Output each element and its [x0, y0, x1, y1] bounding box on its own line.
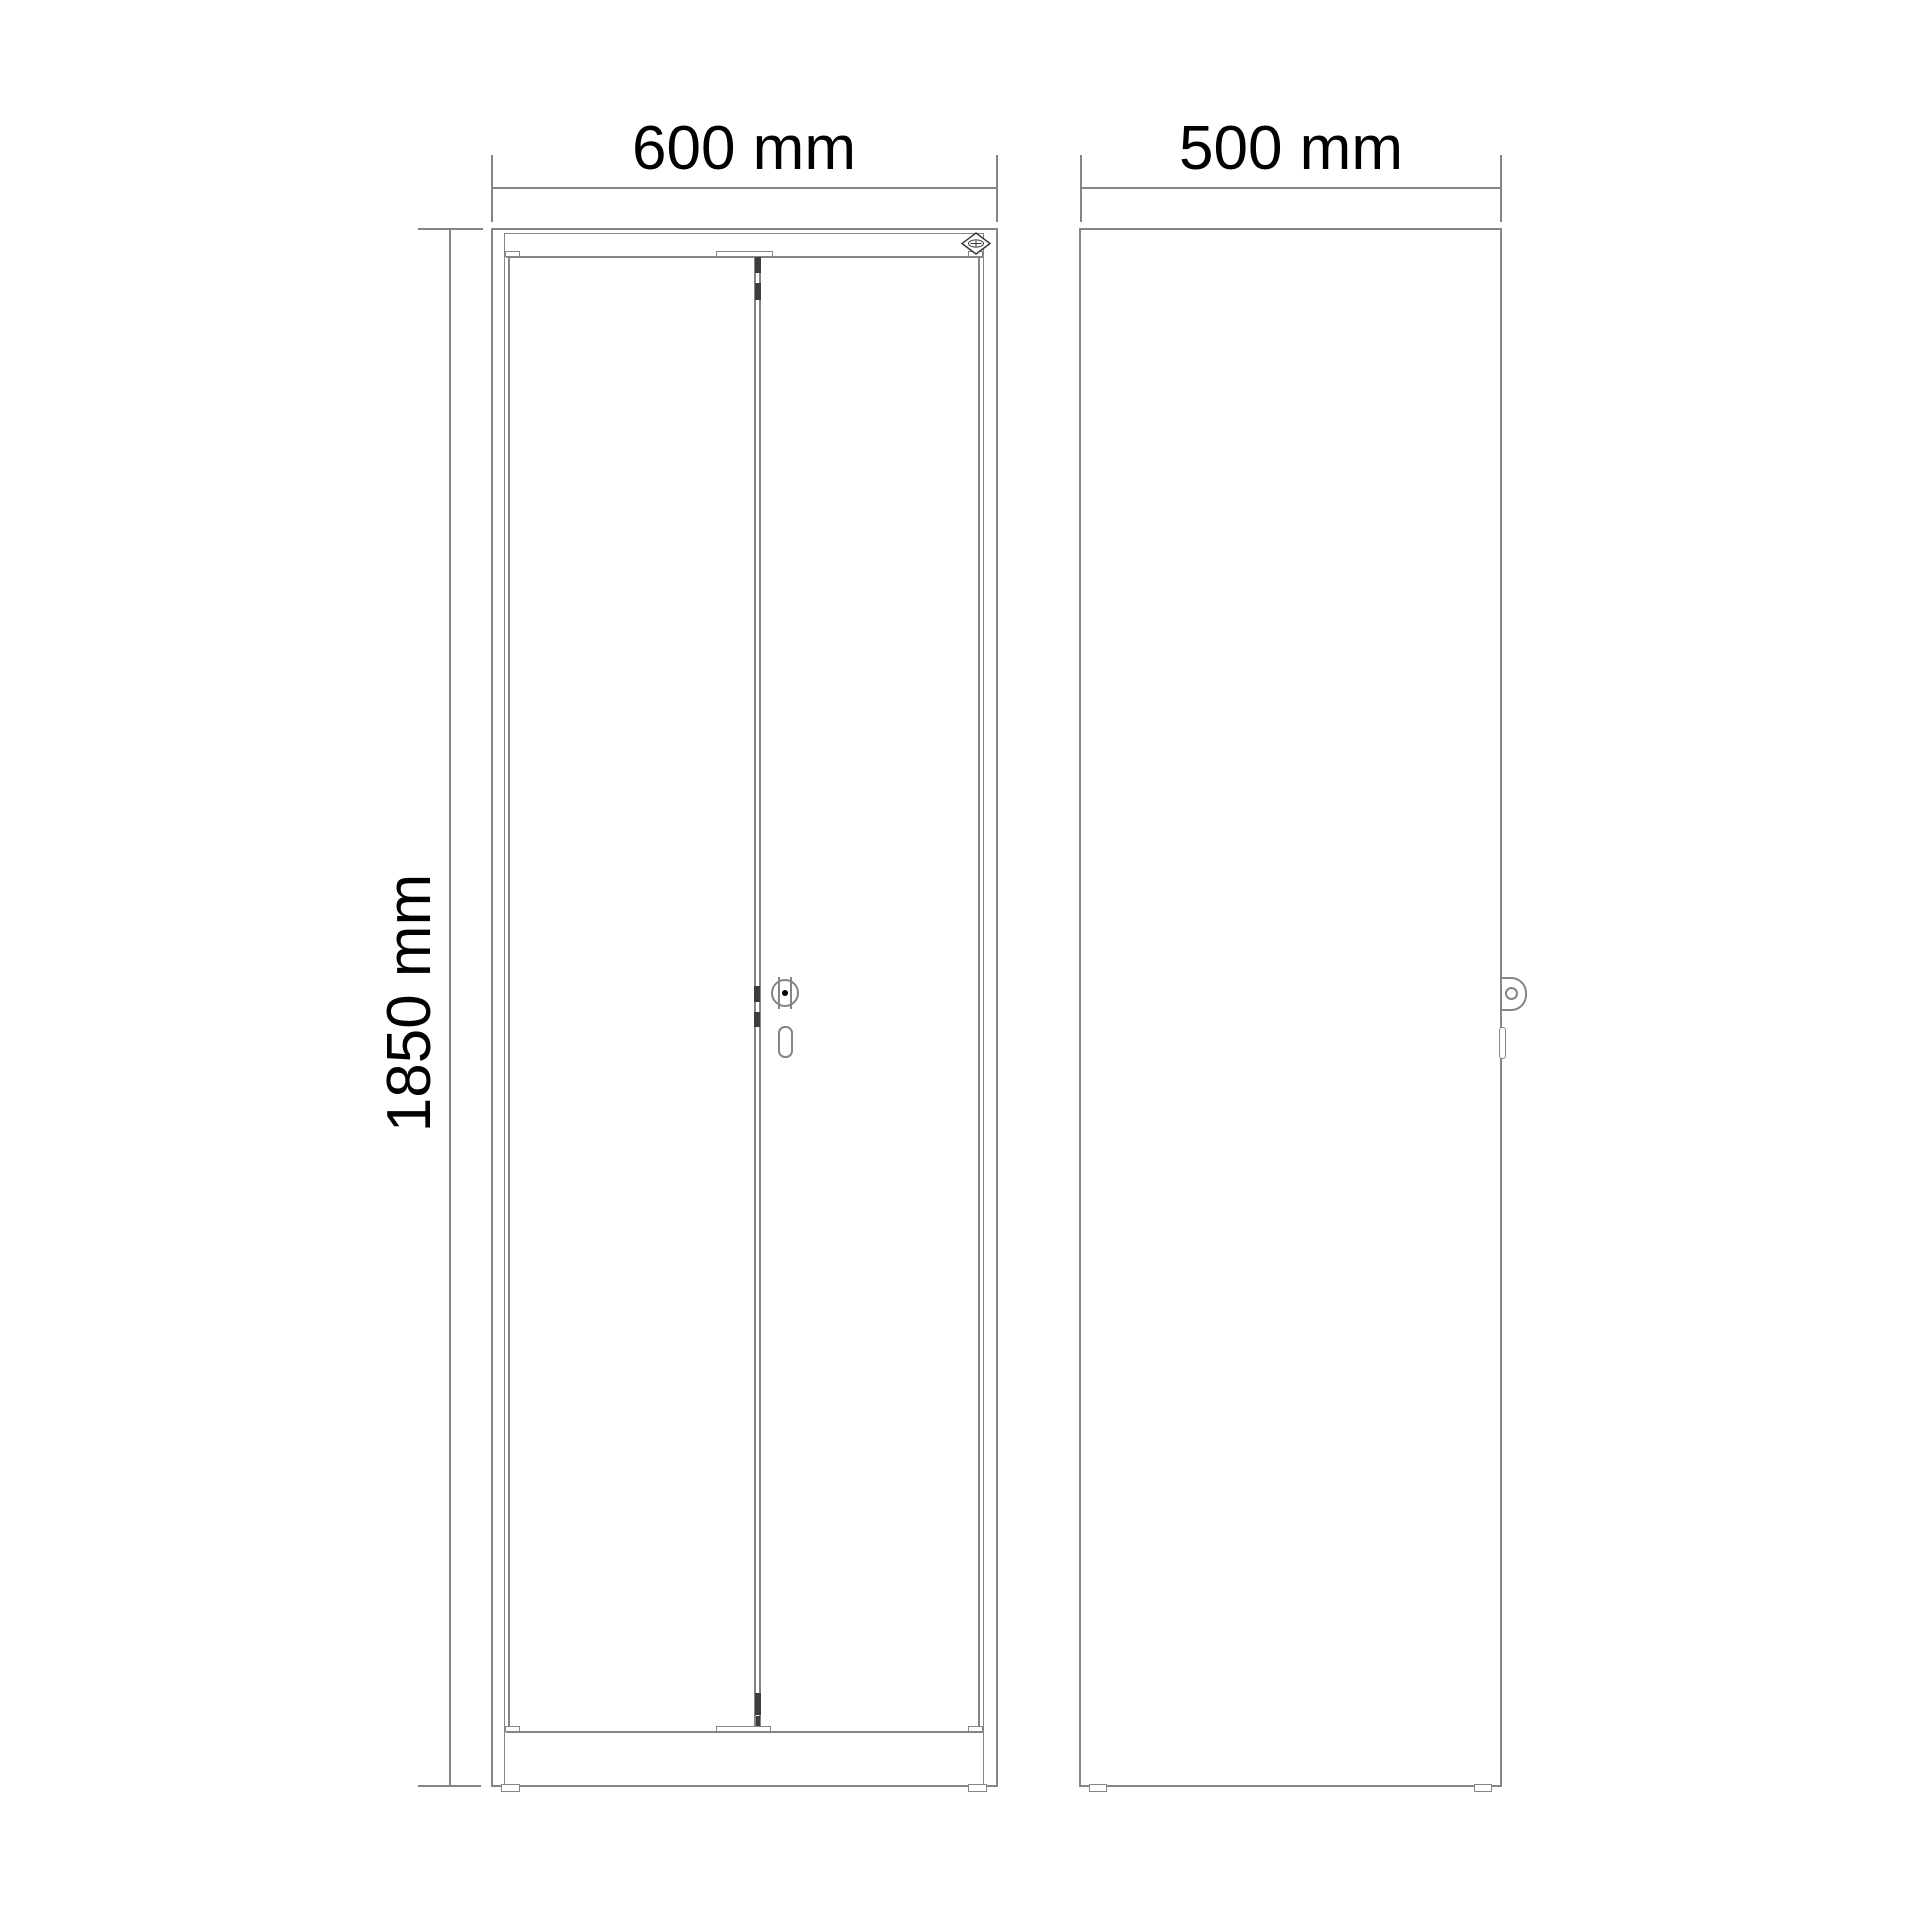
left-door-edge [508, 256, 510, 1732]
front-height-label: 1850 mm [379, 803, 441, 1203]
cabinet-foot [501, 1784, 520, 1792]
key-slot-icon [778, 1026, 793, 1058]
door-latch [754, 1012, 760, 1027]
cabinet-side-body [1079, 228, 1502, 1787]
lock-band-left [778, 977, 780, 1009]
right-door-edge [978, 256, 980, 1732]
hinge-pin [755, 1693, 761, 1715]
door-latch [754, 986, 760, 1002]
side-handle-strip [1499, 1027, 1506, 1059]
knob-circle [1505, 987, 1518, 1000]
hinge-pin [755, 257, 761, 273]
dimension-line [491, 187, 998, 189]
dimension-line [1080, 187, 1502, 189]
drawing-canvas: 600 mm 500 mm 1850 mm [0, 0, 1920, 1920]
top-rail-line [504, 233, 984, 234]
dimension-line [449, 228, 451, 1787]
bracket-bottom-right [968, 1726, 983, 1732]
bracket-bottom-left [505, 1726, 520, 1732]
front-width-label: 600 mm [544, 118, 944, 180]
left-wall-inner-line [504, 233, 505, 1784]
cabinet-foot [968, 1784, 987, 1792]
cp-diamond-logo-icon [961, 232, 991, 255]
cabinet-foot [1089, 1784, 1107, 1792]
right-wall-inner-line [983, 233, 984, 1784]
hinge-plate [716, 1726, 771, 1732]
cabinet-outer-body [491, 228, 998, 1787]
cabinet-foot [1474, 1784, 1492, 1792]
lock-band-right [790, 977, 792, 1009]
hinge-pin [756, 1716, 760, 1726]
side-width-label: 500 mm [1091, 118, 1491, 180]
hinge-pin [755, 283, 761, 300]
lock-dot [782, 990, 788, 996]
bracket-top-left [505, 251, 520, 257]
hinge-plate [716, 251, 773, 257]
